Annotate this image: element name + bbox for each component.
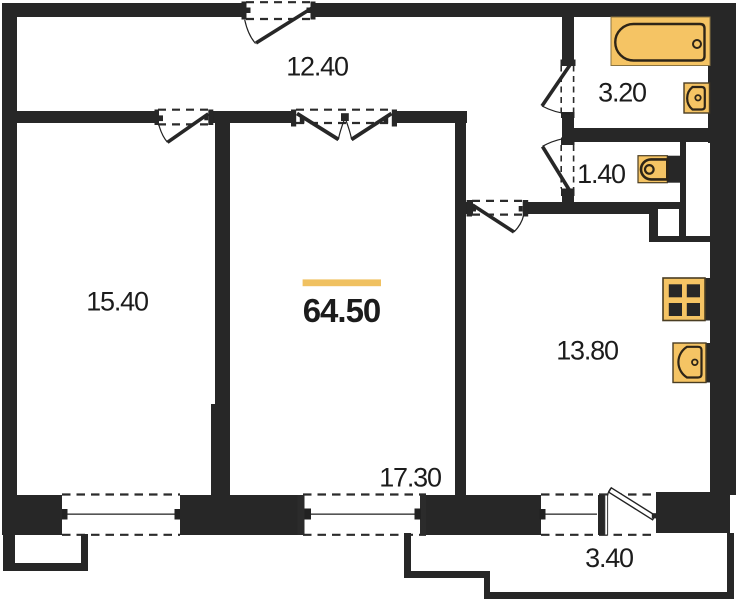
svg-text:1.40: 1.40 <box>577 159 625 189</box>
svg-text:13.80: 13.80 <box>556 336 618 366</box>
svg-text:12.40: 12.40 <box>286 52 348 82</box>
svg-text:15.40: 15.40 <box>86 287 148 317</box>
svg-text:3.20: 3.20 <box>598 78 646 108</box>
svg-text:3.40: 3.40 <box>585 543 633 573</box>
svg-text:17.30: 17.30 <box>379 463 441 493</box>
svg-text:64.50: 64.50 <box>303 292 381 329</box>
